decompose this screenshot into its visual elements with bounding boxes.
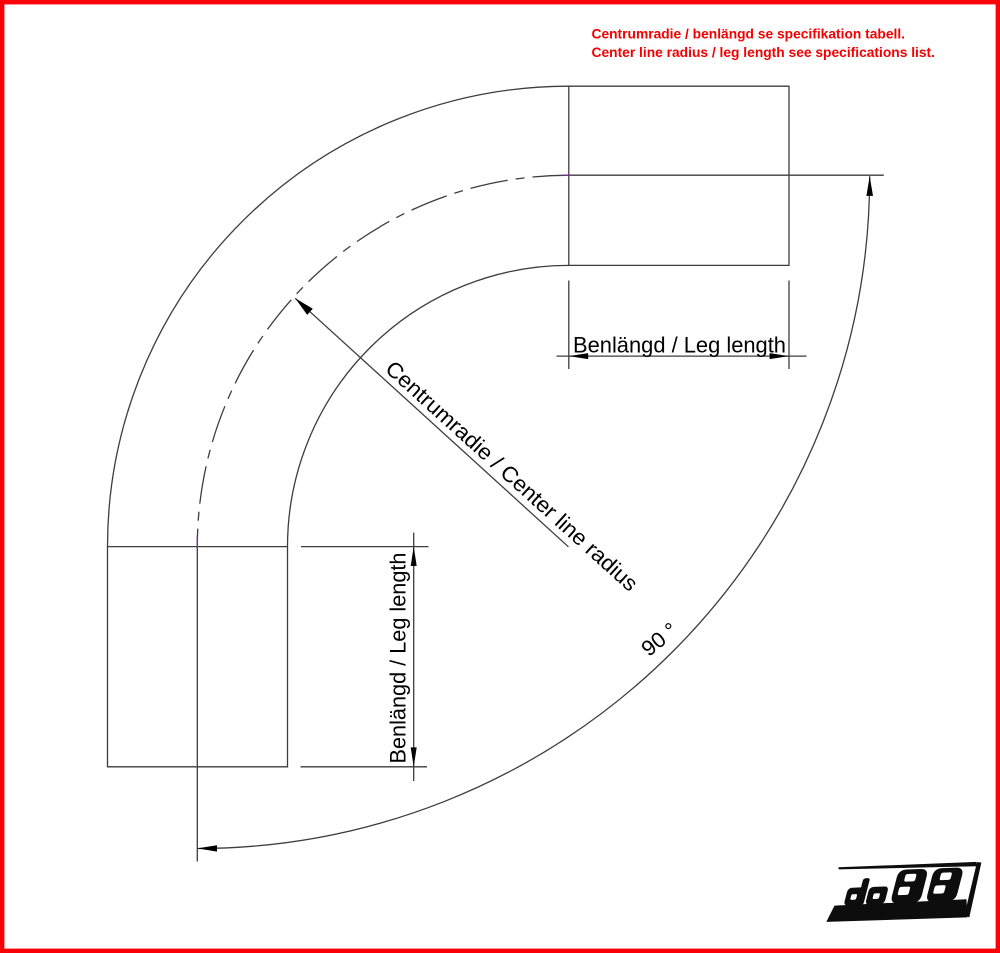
svg-text:Center line radius / leg lengt: Center line radius / leg length see spec… [592,45,936,60]
svg-text:Benlängd / Leg length: Benlängd / Leg length [573,332,786,357]
svg-text:Centrumradie / benlängd se spe: Centrumradie / benlängd se specifikation… [592,27,906,42]
svg-text:Benlängd / Leg length: Benlängd / Leg length [385,553,410,764]
